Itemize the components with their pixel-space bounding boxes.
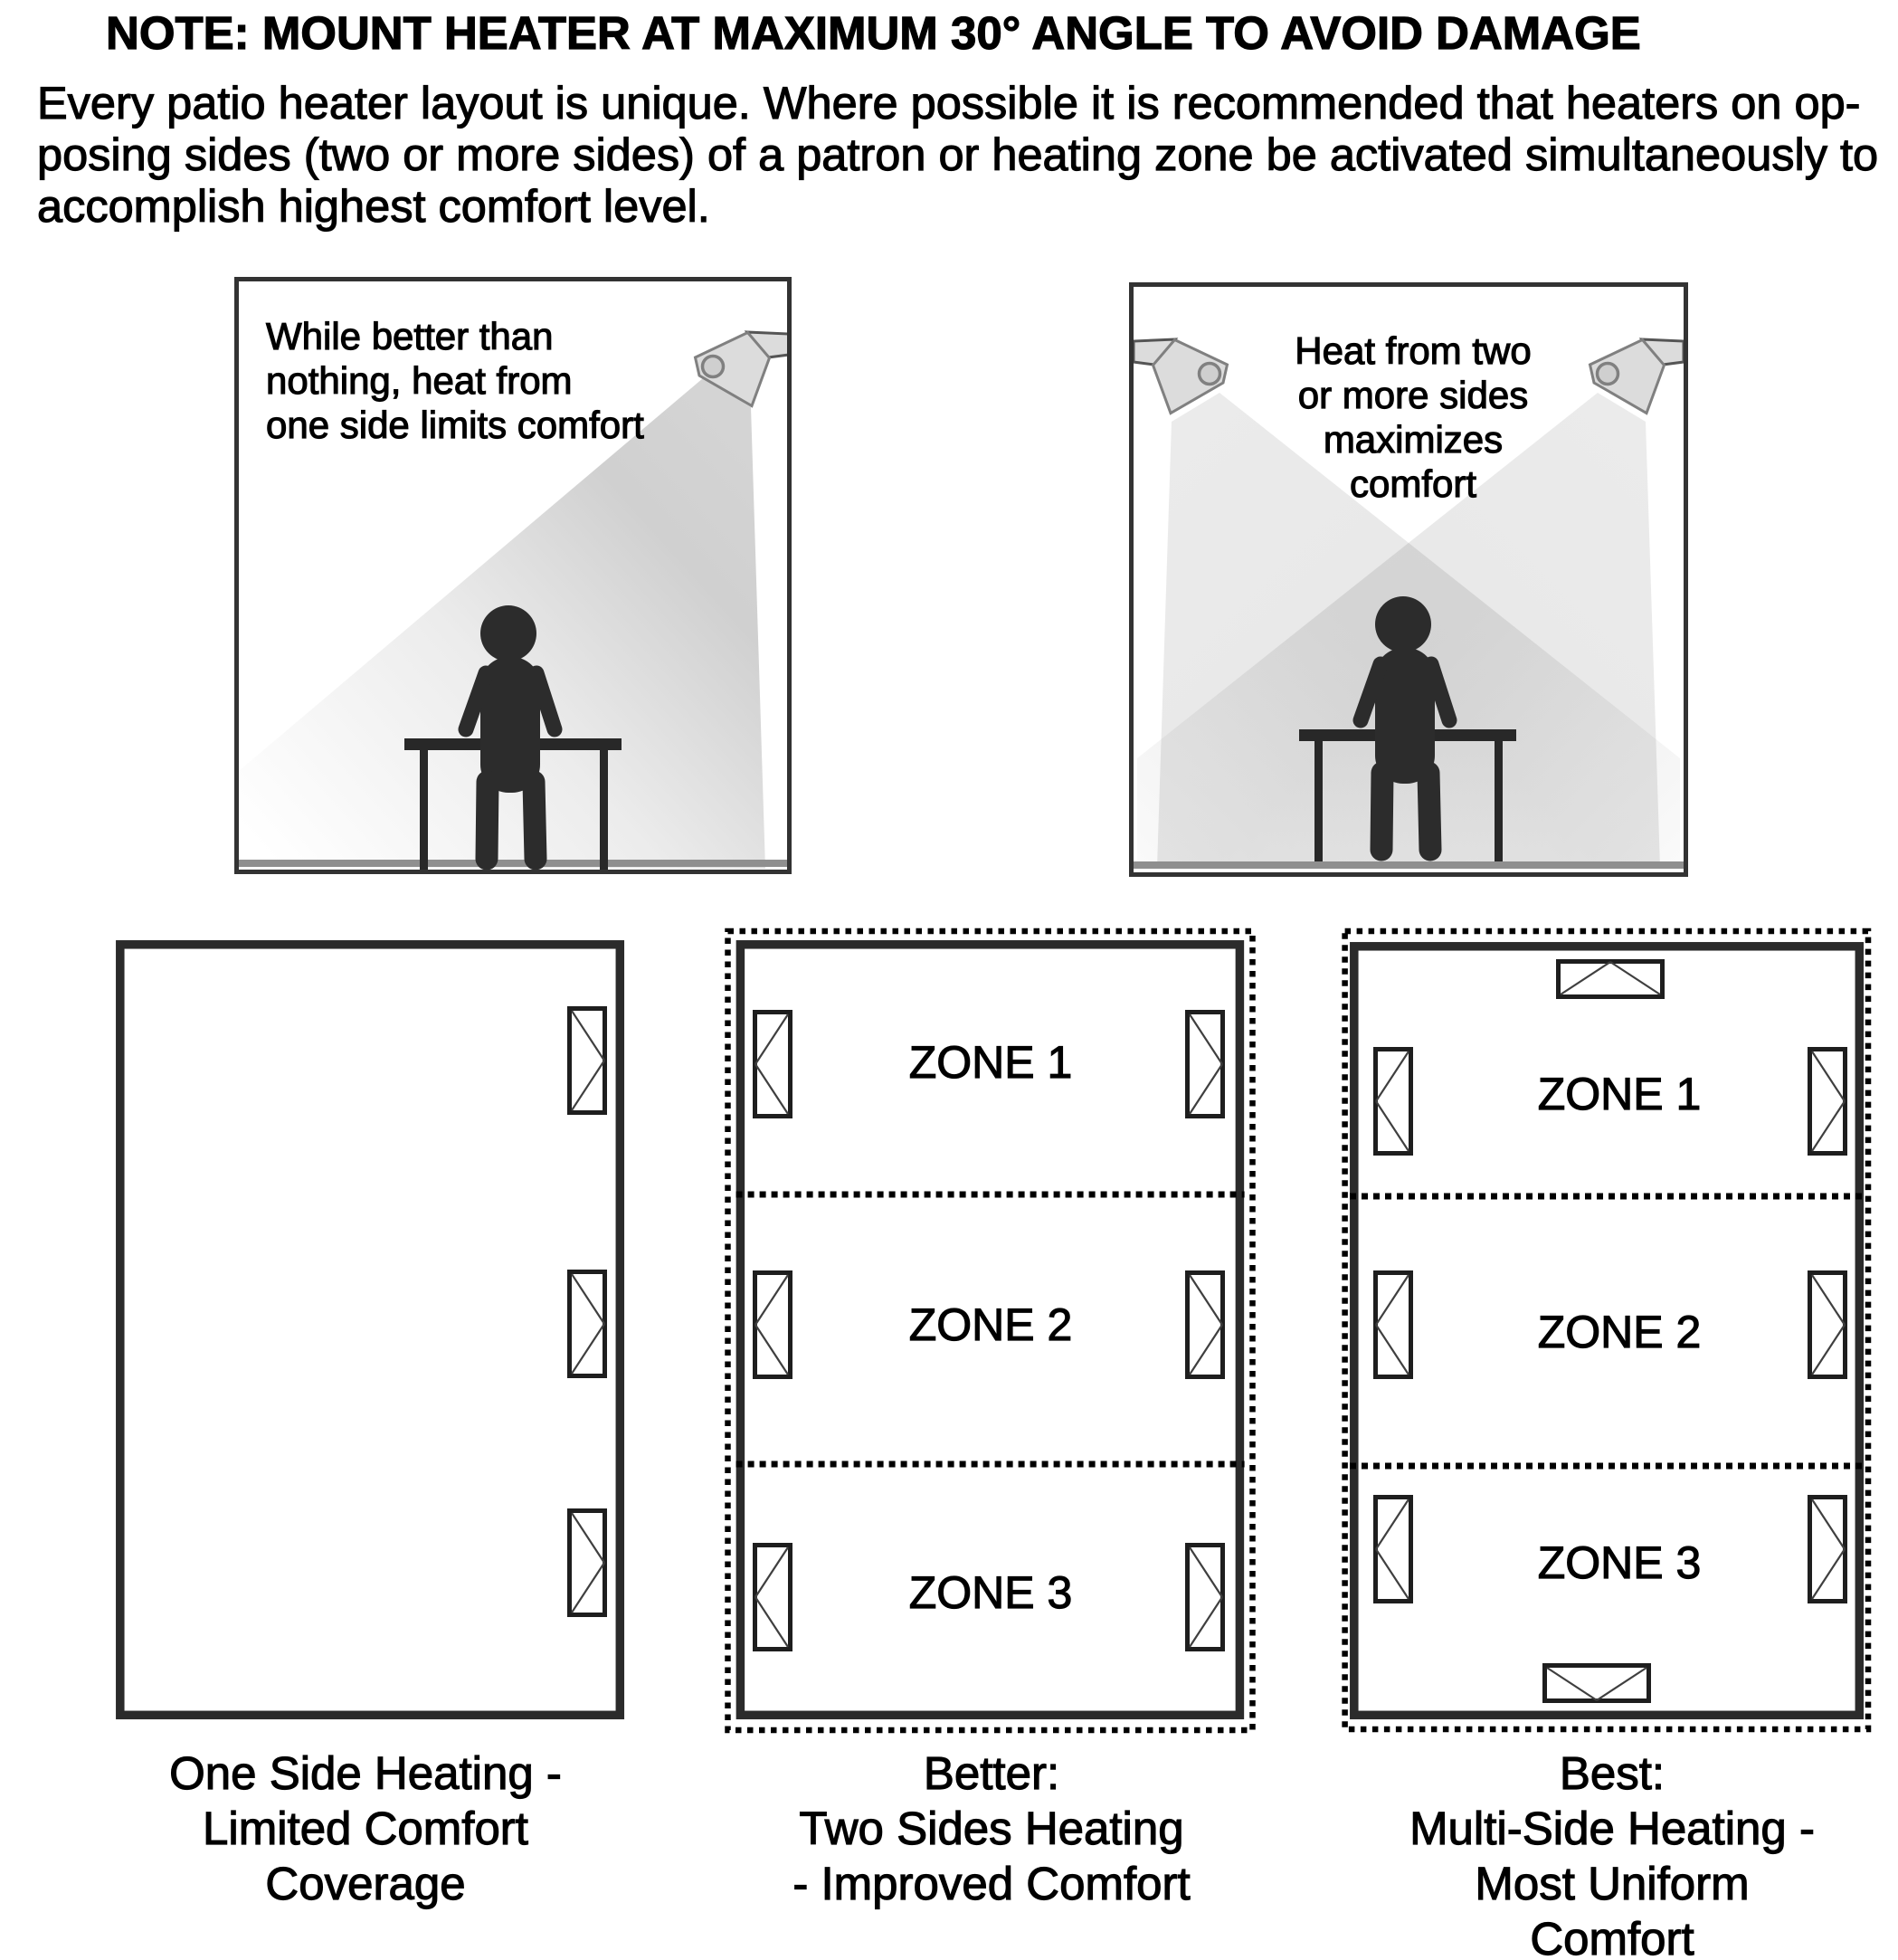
svg-text:Best:: Best:: [1560, 1747, 1665, 1799]
svg-text:Better:: Better:: [924, 1747, 1059, 1799]
svg-text:or more sides: or more sides: [1298, 374, 1528, 416]
svg-text:accomplish highest comfort lev: accomplish highest comfort level.: [37, 180, 710, 232]
svg-text:Multi-Side Heating -: Multi-Side Heating -: [1409, 1803, 1815, 1854]
svg-text:posing sides (two or more side: posing sides (two or more sides) of a pa…: [37, 128, 1878, 180]
svg-text:ZONE 3: ZONE 3: [909, 1567, 1073, 1618]
svg-text:- Improved Comfort: - Improved Comfort: [792, 1858, 1190, 1909]
svg-text:ZONE 2: ZONE 2: [1538, 1307, 1702, 1357]
svg-text:Every patio heater layout is u: Every patio heater layout is unique. Whe…: [37, 77, 1861, 128]
svg-text:ZONE 1: ZONE 1: [909, 1037, 1073, 1088]
svg-text:ZONE 1: ZONE 1: [1538, 1069, 1702, 1119]
svg-text:comfort: comfort: [1350, 462, 1476, 505]
svg-text:Coverage: Coverage: [265, 1858, 465, 1909]
svg-text:While better than: While better than: [266, 315, 554, 357]
svg-text:nothing, heat from: nothing, heat from: [266, 359, 573, 402]
svg-text:ZONE 3: ZONE 3: [1538, 1537, 1702, 1588]
svg-text:maximizes: maximizes: [1324, 418, 1503, 461]
svg-text:Limited Comfort: Limited Comfort: [203, 1803, 528, 1854]
svg-text:NOTE: MOUNT HEATER AT MAXIMUM: NOTE: MOUNT HEATER AT MAXIMUM 30° ANGLE …: [106, 7, 1641, 59]
svg-text:Most Uniform: Most Uniform: [1475, 1858, 1749, 1909]
svg-text:Heat from two: Heat from two: [1295, 329, 1531, 372]
svg-text:Comfort: Comfort: [1530, 1913, 1694, 1960]
svg-text:Two Sides Heating: Two Sides Heating: [799, 1803, 1183, 1854]
svg-text:ZONE 2: ZONE 2: [909, 1299, 1073, 1350]
svg-text:one side limits comfort: one side limits comfort: [266, 404, 644, 446]
svg-text:One Side Heating -: One Side Heating -: [169, 1747, 562, 1799]
